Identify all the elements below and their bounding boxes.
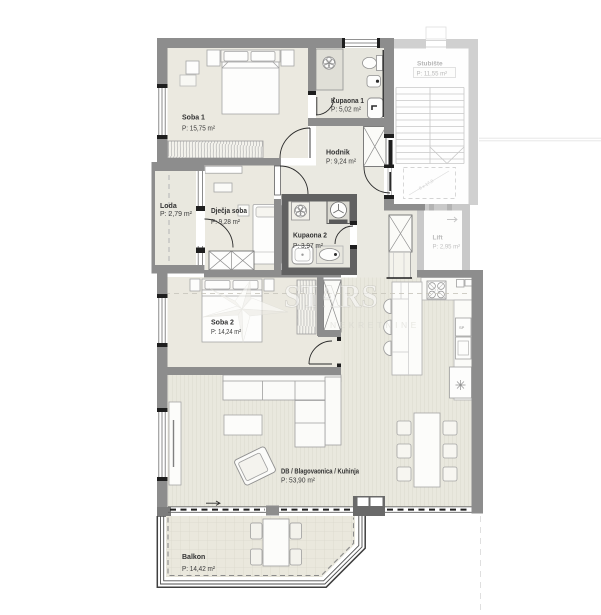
svg-text:Stubište: Stubište [417,61,443,68]
svg-text:Dječja soba: Dječja soba [211,208,247,215]
svg-text:P: 3,97 m²: P: 3,97 m² [293,243,324,250]
svg-text:SP: SP [459,325,465,330]
svg-text:Kupaona 2: Kupaona 2 [293,233,327,240]
svg-text:P: 5,02 m²: P: 5,02 m² [331,107,362,114]
svg-text:P: 2,79 m²: P: 2,79 m² [160,211,193,218]
svg-text:Soba 2: Soba 2 [211,320,234,327]
svg-text:Hodnik: Hodnik [326,150,350,157]
svg-text:P: 15,75 m²: P: 15,75 m² [182,126,216,133]
svg-text:P: 11,55 m²: P: 11,55 m² [417,72,448,78]
svg-text:NEKRETNINE: NEKRETNINE [330,320,420,330]
svg-text:Loda: Loda [160,203,177,210]
svg-text:Soba 1: Soba 1 [182,115,205,122]
svg-text:P: 14,42 m²: P: 14,42 m² [182,566,216,573]
svg-text:DB / Blagovaonica / Kuhinja: DB / Blagovaonica / Kuhinja [281,469,359,476]
svg-text:P: 53,90 m²: P: 53,90 m² [281,478,316,485]
svg-text:Kupaona 1: Kupaona 1 [331,98,364,105]
svg-text:P: 2,95 m²: P: 2,95 m² [433,245,461,251]
svg-text:Lift: Lift [433,235,444,242]
svg-text:STARS: STARS [284,279,378,315]
svg-text:P: 9,28 m²: P: 9,28 m² [211,219,241,226]
svg-text:Balkon: Balkon [182,554,205,561]
svg-text:P: 14,24 m²: P: 14,24 m² [211,329,242,336]
svg-text:P: 9,24 m²: P: 9,24 m² [326,159,357,166]
